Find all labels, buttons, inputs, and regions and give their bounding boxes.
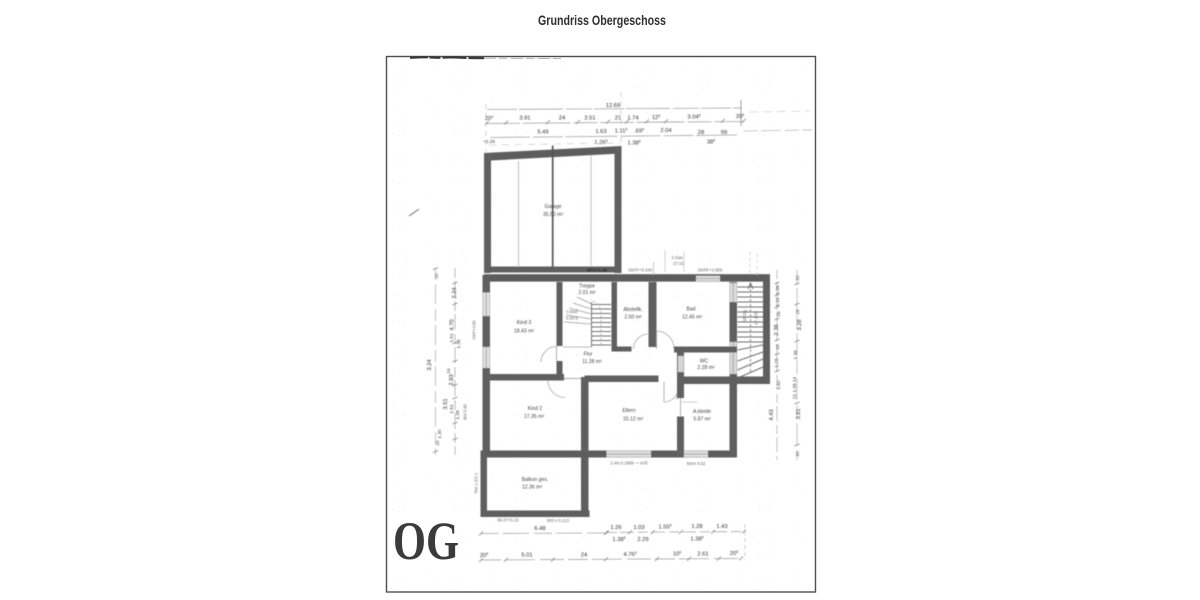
svg-text:A.kleide: A.kleide [693,409,711,415]
svg-text:Flur: Flur [584,352,593,358]
svg-text:24: 24 [581,553,588,559]
svg-text:4.43: 4.43 [769,409,775,420]
svg-text:2.38: 2.38 [774,324,780,335]
svg-text:1.30: 1.30 [437,429,442,439]
svg-text:20: 20 [434,273,439,279]
svg-text:43: 43 [775,344,780,350]
svg-text:15.12 m²: 15.12 m² [623,417,643,423]
svg-text:5mm 4.52: 5mm 4.52 [687,461,706,466]
svg-text:800 x 0.213: 800 x 0.213 [547,518,570,523]
svg-text:5.01: 5.01 [521,553,532,559]
svg-text:28: 28 [795,309,800,315]
svg-text:18 Stg: 18 Stg [742,309,747,322]
svg-text:21 1.38 14: 21 1.38 14 [792,377,797,400]
svg-text:17.35 m²: 17.35 m² [524,414,544,420]
svg-text:OG: OG [393,511,459,571]
svg-text:2.24: 2.24 [452,287,458,299]
svg-text:2.04: 2.04 [660,128,672,134]
svg-text:65.07+0.15: 65.07+0.15 [497,518,519,523]
svg-text:20: 20 [435,440,440,446]
svg-text:1.26: 1.26 [610,525,621,531]
svg-text:2.51: 2.51 [584,116,595,122]
svg-text:5.87 m²: 5.87 m² [693,417,711,423]
svg-text:24: 24 [446,368,451,374]
svg-text:1.36: 1.36 [775,285,780,295]
svg-text:12.36 m²: 12.36 m² [522,485,542,491]
svg-text:+2.26: +2.26 [483,139,495,144]
svg-text:6.48: 6.48 [534,526,545,532]
svg-text:1.28: 1.28 [774,358,779,368]
svg-text:1.51: 1.51 [449,404,454,414]
svg-text:Abstellk.: Abstellk. [623,307,642,313]
svg-text:21: 21 [615,116,621,122]
svg-text:35.50 m²: 35.50 m² [543,212,563,218]
svg-text:3.91: 3.91 [519,116,530,122]
svg-text:11.28 m²: 11.28 m² [582,359,602,365]
svg-text:Bad: Bad [686,307,695,313]
svg-text:1.38: 1.38 [455,410,460,420]
svg-text:2.Gas: 2.Gas [671,255,682,260]
svg-text:2.50 m²: 2.50 m² [624,315,642,321]
svg-text:6Pn+1.36: 6Pn+1.36 [587,268,607,273]
svg-text:OKFF+5.345: OKFF+5.345 [628,268,653,273]
svg-text:18.43 m²: 18.43 m² [514,329,534,335]
svg-text:12.69: 12.69 [606,103,621,109]
svg-text:3.24: 3.24 [427,359,433,371]
svg-text:Rat 1.5/2.1: Rat 1.5/2.1 [474,472,479,493]
svg-text:1.74: 1.74 [627,116,639,122]
svg-text:2.4m 5.1889 — m²ß: 2.4m 5.1889 — m²ß [610,461,648,466]
svg-text:1.43: 1.43 [716,524,727,530]
svg-text:20: 20 [795,451,800,457]
svg-text:2.01 m²: 2.01 m² [578,290,596,296]
svg-text:3.81: 3.81 [796,408,802,419]
svg-text:1.03: 1.03 [633,525,644,531]
svg-text:1.38: 1.38 [775,297,780,307]
svg-text:1.36: 1.36 [456,339,461,349]
svg-text:OKF+4.80: OKF+4.80 [472,320,477,340]
svg-text:Treppe: Treppe [579,284,595,290]
svg-text:Eltern: Eltern [622,408,635,414]
svg-text:Kind 3: Kind 3 [517,320,532,326]
svg-text:3.28: 3.28 [797,319,803,330]
svg-text:2.29: 2.29 [637,537,648,543]
svg-text:2.83: 2.83 [449,374,455,385]
svg-text:5.49: 5.49 [537,130,548,136]
svg-text:n.Bad: n.Bad [567,309,579,314]
svg-text:2.61: 2.61 [697,552,708,558]
svg-text:12.45 m²: 12.45 m² [682,315,702,321]
svg-text:OKRF+2.805: OKRF+2.805 [698,268,723,273]
svg-text:1.38: 1.38 [793,350,798,360]
svg-text:Garage: Garage [545,204,562,210]
svg-text:5.08 B: 5.08 B [566,316,578,321]
svg-text:Kind 2: Kind 2 [528,406,543,412]
svg-text:WC: WC [700,359,709,365]
svg-text:Balkon ges.: Balkon ges. [522,477,549,483]
svg-text:20: 20 [795,275,800,281]
svg-text:24: 24 [559,116,566,122]
svg-text:28: 28 [776,311,781,317]
svg-text:Brüstung 0.9: Brüstung 0.9 [584,467,589,491]
svg-text:1.51: 1.51 [449,333,454,343]
svg-text:17.2/25: 17.2/25 [754,310,759,325]
svg-text:2.28 m²: 2.28 m² [697,365,715,371]
svg-text:-27.02: -27.02 [672,261,685,266]
svg-text:Grundriss Obergeschoss: Grundriss Obergeschoss [538,13,666,28]
svg-text:1.60: 1.60 [776,380,781,390]
svg-text:1.63: 1.63 [595,129,606,135]
svg-text:4.70: 4.70 [450,319,456,330]
svg-text:Brü 0.90: Brü 0.90 [463,403,468,420]
svg-text:1.28: 1.28 [691,524,702,530]
